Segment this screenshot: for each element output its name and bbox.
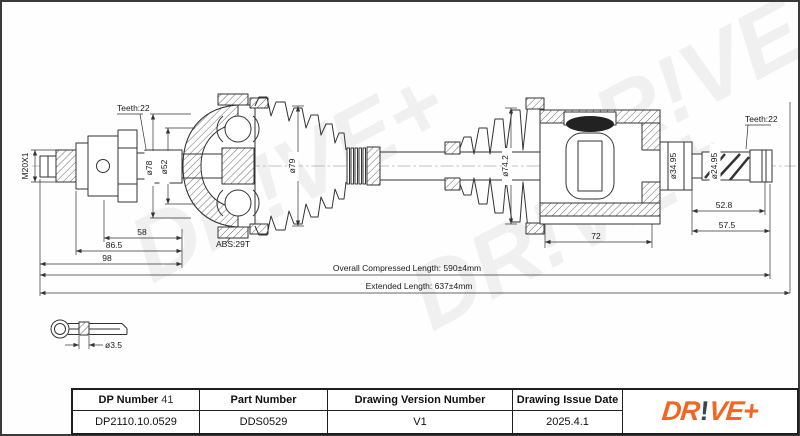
boot-clamp (526, 223, 544, 234)
boot-clamp (445, 142, 460, 154)
pin-diameter-label: ø3.5 (105, 340, 122, 350)
dia-52-label: ø52 (159, 159, 169, 174)
title-block: DP Number 41 Part Number Drawing Version… (71, 388, 799, 435)
drawing-version-value: V1 (328, 411, 513, 433)
overall-compressed-label: Overall Compressed Length: 590±4mm (333, 263, 481, 273)
dp-number-header-suffix: 41 (161, 394, 173, 406)
issue-date-value: 2025.4.1 (513, 411, 623, 433)
abs-ring-label: ABS:29T (216, 239, 250, 249)
dia-34-95-label: ø34.95 (668, 152, 678, 179)
dim-72-label: 72 (591, 231, 601, 241)
bearing-ball (225, 116, 251, 142)
inner-joint-housing (540, 110, 660, 224)
dim-57-5-label: 57.5 (719, 220, 736, 230)
dp-number-header-text: DP Number (99, 394, 159, 406)
extended-length-label: Extended Length: 637±4mm (366, 281, 473, 291)
logo: DR!VE+ (661, 398, 760, 425)
grease-cap (566, 116, 614, 132)
part-number-header: Part Number (200, 390, 328, 411)
dim-86-5-label: 86.5 (106, 240, 123, 250)
bearing-ball (225, 190, 251, 216)
driveshaft-technical-drawing: DR!VE+ DR!VE+ DR!VE+ (2, 2, 798, 386)
dim-58-label: 58 (137, 227, 147, 237)
teeth-left-label: Teeth:22 (117, 103, 150, 113)
dp-number-header: DP Number 41 (73, 390, 200, 411)
dia-79-label: ø79 (287, 158, 297, 173)
abs-ring (218, 94, 248, 105)
dim-98-label: 98 (102, 253, 112, 263)
dim-52-8-label: 52.8 (716, 200, 733, 210)
logo-second: VE+ (708, 396, 760, 426)
dia-24-95-label: ø24.95 (709, 152, 719, 179)
logo-first: DR (661, 396, 701, 426)
abs-ring (218, 227, 248, 238)
boot-clamp (526, 98, 544, 109)
boot-clamp (250, 98, 268, 108)
dia-74-2-label: ø74.2 (500, 155, 510, 177)
drawing-version-header: Drawing Version Number (328, 390, 513, 411)
boot-clamp (445, 178, 460, 190)
dp-number-value: DP2110.10.0529 (73, 411, 200, 433)
boot-clamp (367, 147, 380, 185)
thread-spec-label: M20X1 (20, 152, 30, 179)
teeth-right-label: Teeth:22 (745, 114, 778, 124)
brand-logo-cell: DR!VE+ (623, 390, 797, 433)
issue-date-header: Drawing Issue Date (513, 390, 623, 411)
cotter-pin-detail (51, 320, 127, 338)
part-number-value: DDS0529 (200, 411, 328, 433)
dia-78-label: ø78 (144, 160, 154, 175)
boot-clamp (250, 224, 268, 234)
